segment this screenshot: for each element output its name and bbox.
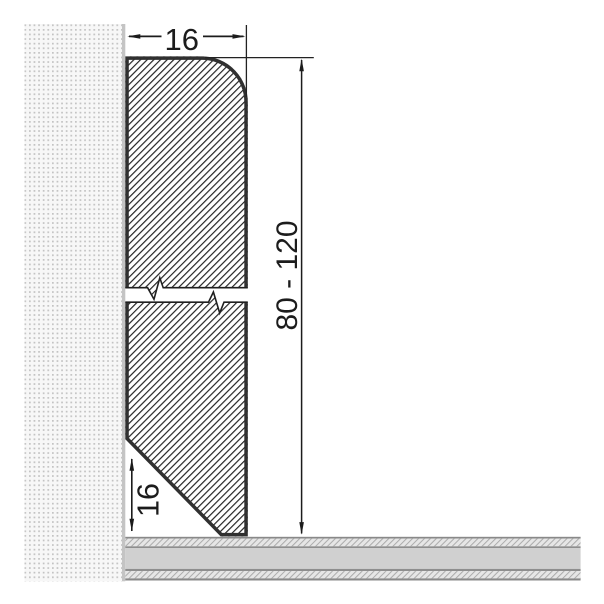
svg-text:80 - 120: 80 - 120 xyxy=(271,220,304,330)
svg-text:16: 16 xyxy=(131,483,165,517)
svg-text:16: 16 xyxy=(164,22,198,57)
